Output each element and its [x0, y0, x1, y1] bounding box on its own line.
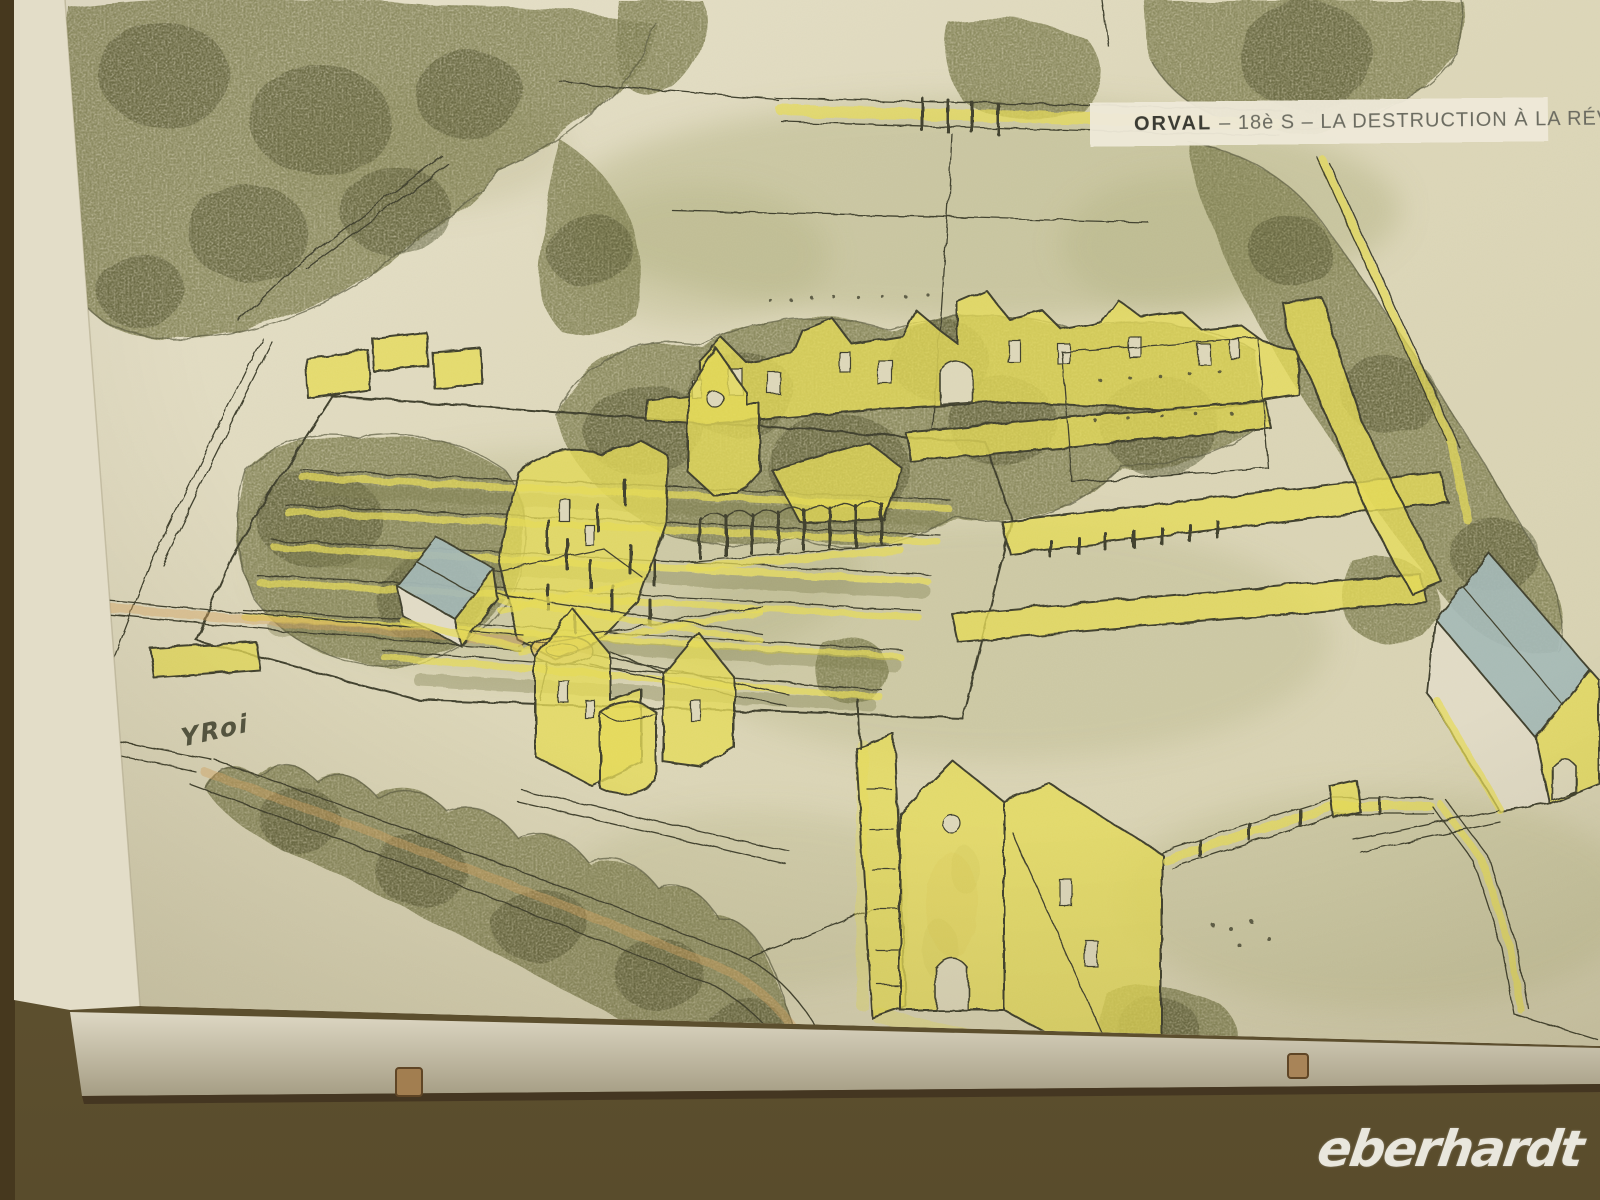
photo-background: ORVAL – 18è S – LA DESTRUCTION À LA RÉVO…	[0, 0, 1600, 1200]
drawing-title-strip: ORVAL – 18è S – LA DESTRUCTION À LA RÉVO…	[1090, 97, 1549, 147]
drawing-canvas	[0, 0, 1600, 1092]
abbey-drawing	[0, 0, 1600, 1200]
frame-clip-right	[1288, 1054, 1308, 1078]
frame-clip-left	[396, 1068, 422, 1096]
photo-vignette	[0, 0, 1600, 1060]
watermark-logo: eberhardt	[1314, 1120, 1586, 1178]
drawing-title-caption: – 18è S – LA DESTRUCTION À LA RÉVOLUTION	[1219, 106, 1600, 135]
drawing-title-name: ORVAL	[1134, 112, 1212, 136]
wall-left-shadow	[0, 0, 15, 1200]
